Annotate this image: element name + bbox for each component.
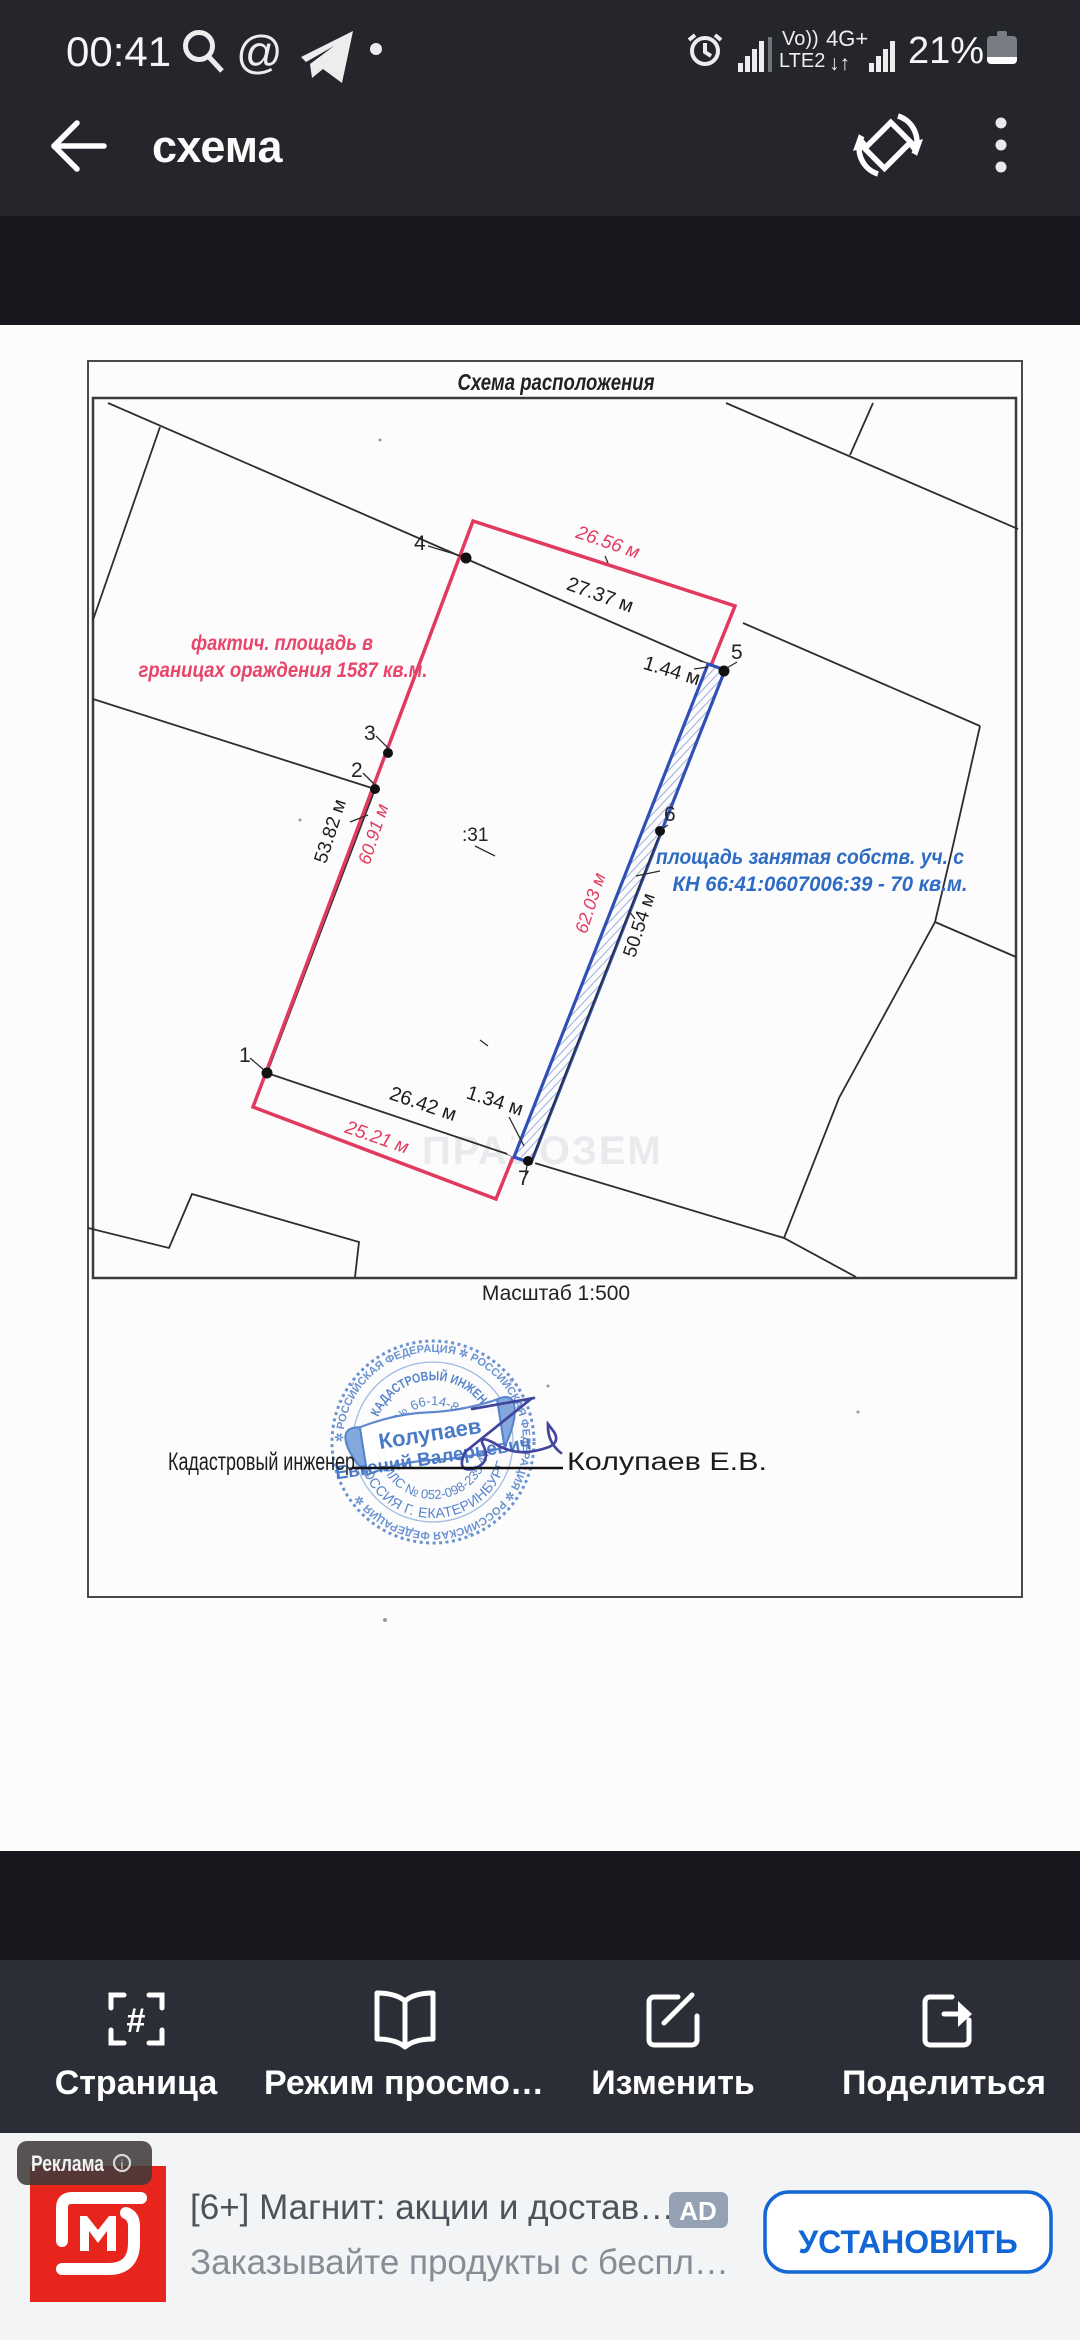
svg-text:Поделиться: Поделиться	[842, 2064, 1046, 2102]
svg-text:26.42 м: 26.42 м	[387, 1083, 460, 1126]
svg-text:6: 6	[664, 803, 676, 826]
svg-text:5: 5	[731, 641, 743, 664]
svg-text::31: :31	[462, 825, 488, 846]
svg-text:1: 1	[239, 1044, 251, 1067]
svg-text:↓↑: ↓↑	[829, 52, 850, 75]
svg-text:Заказывайте продукты с беспл…: Заказывайте продукты с беспл…	[190, 2243, 729, 2282]
svg-text:Изменить: Изменить	[591, 2064, 755, 2102]
svg-text:4: 4	[414, 532, 426, 555]
svg-text:60.91 м: 60.91 м	[354, 801, 392, 867]
svg-text:4G+: 4G+	[826, 26, 868, 51]
svg-text:Режим просмо…: Режим просмо…	[264, 2064, 544, 2102]
svg-text:00:41: 00:41	[66, 28, 171, 75]
svg-text:Кадастровый инженер: Кадастровый инженер	[168, 1448, 355, 1476]
svg-text:Страница: Страница	[55, 2064, 219, 2102]
svg-text:27.37 м: 27.37 м	[564, 573, 637, 617]
svg-text:@: @	[236, 26, 283, 78]
svg-text:AD: AD	[679, 2196, 717, 2226]
svg-text:Колупаев Е.В.: Колупаев Е.В.	[567, 1448, 767, 1476]
svg-text:Масштаб 1:500: Масштаб 1:500	[482, 1282, 630, 1305]
svg-text:21%: 21%	[908, 30, 984, 72]
svg-text:площадь занятая собств. уч. с: площадь занятая собств. уч. с	[656, 846, 964, 869]
svg-text:LTE2: LTE2	[779, 50, 825, 72]
svg-text:Схема расположения: Схема расположения	[458, 369, 655, 395]
svg-text:3: 3	[364, 722, 376, 745]
svg-text:53.82 м: 53.82 м	[311, 797, 351, 866]
svg-text:КН 66:41:0607006:39 - 70 кв.м.: КН 66:41:0607006:39 - 70 кв.м.	[673, 873, 968, 896]
svg-text:Реклама: Реклама	[31, 2151, 105, 2176]
svg-text:Vo)): Vo))	[782, 28, 819, 50]
svg-text:7: 7	[518, 1167, 530, 1190]
svg-text:УСТАНОВИТЬ: УСТАНОВИТЬ	[798, 2224, 1018, 2260]
svg-text:1.34 м: 1.34 м	[464, 1082, 526, 1121]
svg-text:i: i	[121, 2157, 124, 2172]
svg-text:#: #	[127, 2002, 146, 2040]
svg-text:схема: схема	[152, 121, 283, 172]
svg-text:фактич. площадь в: фактич. площадь в	[191, 632, 373, 655]
svg-text:2: 2	[351, 759, 363, 782]
svg-text:границах ораждения 1587 кв.м.: границах ораждения 1587 кв.м.	[139, 659, 428, 682]
svg-text:[6+] Магнит: акции и достав…: [6+] Магнит: акции и достав…	[190, 2188, 674, 2227]
